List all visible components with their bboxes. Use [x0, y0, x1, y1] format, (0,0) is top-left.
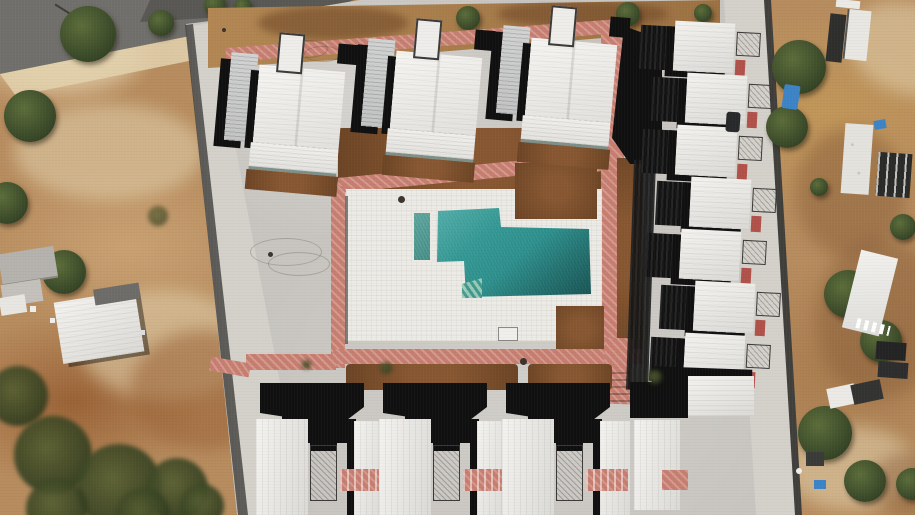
courtyard-red-path-bottom	[333, 349, 643, 364]
manhole	[268, 252, 273, 257]
partial-cluster-shadow	[630, 382, 688, 418]
stair-shaft	[548, 5, 577, 47]
tree	[890, 214, 915, 240]
stair-tower	[738, 136, 763, 161]
partial-cluster-roof	[634, 420, 680, 510]
stair-tower	[746, 344, 771, 369]
apartment-block-1	[220, 38, 373, 200]
cluster-roof	[600, 421, 630, 515]
shed-white	[841, 123, 874, 195]
roof-shadow-wing	[641, 129, 677, 175]
red-paving	[340, 469, 382, 491]
tarp-blue	[781, 84, 800, 110]
soil-patch	[515, 163, 597, 219]
townhouse-roof	[679, 229, 742, 282]
bottom-cluster-2	[379, 383, 509, 515]
chimney-block	[337, 43, 359, 65]
red-paving	[463, 469, 505, 491]
stair-tower	[736, 32, 761, 57]
stair-tower	[433, 445, 460, 501]
chimney-block	[474, 29, 496, 51]
stair-tower	[756, 292, 781, 317]
stair-tower	[748, 84, 773, 109]
tree	[810, 178, 828, 196]
manhole	[222, 28, 226, 32]
bottom-cluster-1	[256, 383, 386, 515]
main-roof	[253, 65, 345, 150]
cluster-roof	[256, 419, 308, 515]
wall-shadow	[345, 196, 348, 344]
aerial-photo-scene	[0, 0, 915, 515]
main-roof	[390, 51, 482, 136]
tree	[456, 6, 480, 30]
roof-shadow-wing	[645, 233, 681, 279]
roof-shadow-wing	[639, 25, 675, 71]
tree	[844, 460, 886, 502]
stair-tower	[752, 188, 777, 213]
manhole	[398, 196, 405, 203]
red-paving	[662, 470, 688, 490]
stair-tower	[742, 240, 767, 265]
cluster-roof	[379, 419, 431, 515]
stair-tower	[556, 445, 583, 501]
pool-pump-box	[498, 327, 518, 341]
tree	[148, 10, 174, 36]
tarp-blue	[814, 480, 826, 489]
tire-marks	[268, 252, 330, 276]
debris	[50, 318, 55, 323]
courtyard-red-path-left	[331, 186, 345, 368]
construction-material	[806, 452, 824, 466]
townhouse-roof	[673, 21, 736, 74]
stair-shaft	[413, 18, 442, 60]
tree	[766, 106, 808, 148]
debris	[30, 306, 36, 312]
tree	[60, 6, 116, 62]
manhole	[520, 358, 527, 365]
townhouse-roof	[693, 281, 756, 334]
townhouse-roof	[689, 177, 752, 230]
debris	[796, 468, 802, 474]
red-paving	[586, 469, 628, 491]
parked-car	[725, 112, 740, 133]
tree	[4, 90, 56, 142]
cluster-roof	[502, 419, 554, 515]
main-roof	[525, 38, 617, 123]
roof-shadow-wing	[651, 77, 687, 123]
scrub-bush	[380, 362, 392, 374]
truck-dark	[877, 361, 908, 379]
roof-shadow-wing	[659, 285, 695, 331]
storage-container-striped	[876, 152, 913, 198]
scrub-bush	[302, 360, 311, 369]
apartment-block-2	[357, 24, 510, 186]
red-path-exit-west	[246, 354, 336, 370]
scrub-bush	[648, 370, 662, 384]
townhouse-roof	[675, 125, 738, 178]
corner-roof	[688, 376, 754, 416]
truck-dark	[875, 341, 906, 361]
kiddie-pool	[412, 211, 432, 262]
stair-tower	[310, 445, 337, 501]
bottom-cluster-3	[502, 383, 632, 515]
debris	[140, 330, 145, 335]
stair-shaft	[276, 32, 305, 74]
roof-shadow-wing	[655, 181, 691, 227]
scrub-bush	[148, 206, 168, 226]
